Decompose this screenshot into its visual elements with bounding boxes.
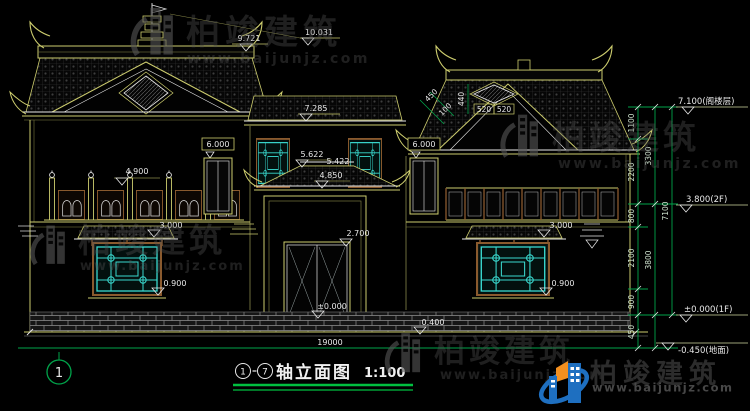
watermark-brand: 柏竣建筑 (186, 13, 342, 53)
level-attic: 7.100(阁楼层) (678, 96, 734, 107)
corbel-left-wing-edge (230, 224, 258, 234)
plinth-ground (18, 312, 678, 348)
dim-door: 2.700 (347, 229, 370, 238)
axis-bubble-label: 1 (55, 366, 63, 381)
dim-canopy: 4.850 (320, 171, 343, 180)
corbel-right-wing (580, 224, 604, 248)
dim-mid-upper: 5.622 (301, 150, 324, 159)
left-tall-window: 6.000 (202, 138, 234, 214)
dim-mid-lower: 5.422 (327, 157, 350, 166)
dim-total-width: 19000 (317, 338, 342, 347)
chain-mid-2: 3800 (644, 250, 653, 269)
title-scale: 1:100 (364, 366, 405, 381)
dim-plinth: 0.400 (422, 318, 445, 327)
chain-seg-5: 900 (627, 295, 636, 310)
right-ridge-ornament (518, 60, 530, 70)
dim-gable-b: 520 (497, 105, 512, 114)
dim-center-eave: 7.285 (305, 104, 328, 113)
right-panel-row (446, 188, 618, 220)
watermark-brand: 柏竣建筑 (434, 334, 574, 370)
dim-gable-a: 520 (477, 105, 492, 114)
dim-gable-height: 440 (457, 92, 466, 107)
right-lattice-window (477, 243, 549, 295)
right-window-group (462, 226, 566, 298)
dim-window-left: 6.000 (207, 140, 230, 149)
chain-seg-4: 2100 (627, 248, 636, 267)
elevation-canvas: 6.000 (0, 0, 750, 411)
right-tall-window: 6.000 (408, 138, 440, 214)
watermark-brand: 柏竣建筑 (552, 118, 700, 157)
brand-logo-url: www.baijunjz.com (592, 381, 733, 395)
title-axis-to: 7 (262, 368, 268, 378)
dim-sill-right: 0.900 (552, 279, 575, 288)
cad-elevation-screenshot: 6.000 (0, 0, 750, 411)
dim-sill-left: 0.900 (164, 279, 187, 288)
axis-bubble: 1 (47, 352, 71, 384)
level-f1: ±0.000(1F) (684, 305, 732, 315)
elevation-drawing: 6.000 (10, 3, 748, 390)
corbel-left-wall (18, 226, 38, 236)
brand-logo: 柏竣建筑 www.baijunjz.com (536, 358, 733, 408)
watermark-url: www.baijunjz.com (187, 51, 370, 67)
dim-floor-zero: ±0.000 (317, 302, 347, 311)
dim-railing: 4.900 (126, 167, 149, 176)
title-text: 轴立面图 (276, 362, 352, 383)
title-axis-from: 1 (240, 368, 246, 378)
chain-total: 7100 (661, 201, 670, 220)
chain-seg-6: 450 (627, 325, 636, 340)
dim-awning-right: 3.000 (550, 221, 573, 230)
watermark-logo-icon (33, 226, 65, 264)
ridge-curl-left (30, 22, 50, 48)
watermark-url: www.baijunjz.com (80, 259, 245, 274)
watermark-brand: 柏竣建筑 (78, 221, 226, 260)
dim-window-right: 6.000 (413, 140, 436, 149)
watermark-url: www.baijunjz.com (558, 156, 741, 172)
level-f2: 3.800(2F) (686, 195, 727, 205)
chain-seg-3: 800 (627, 209, 636, 224)
level-ground: -0.450(地面) (678, 345, 729, 356)
watermark-left: 柏竣建筑 www.baijunjz.com (33, 221, 245, 274)
